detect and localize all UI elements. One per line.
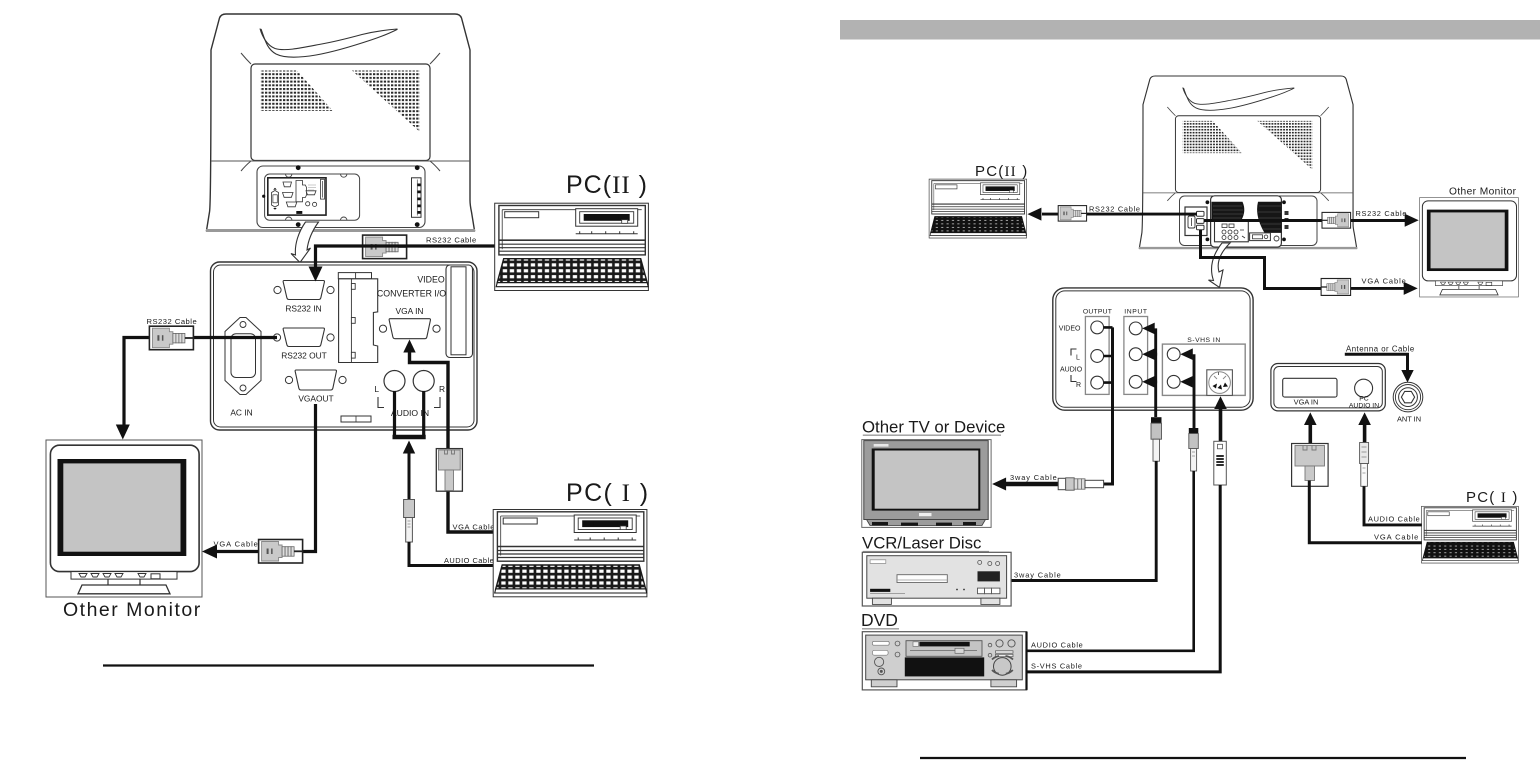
svg-text:L: L: [1076, 355, 1080, 362]
svg-text:OUTPUT: OUTPUT: [1083, 309, 1112, 316]
svg-text:VGA IN: VGA IN: [396, 306, 424, 316]
svg-text:AUDIO: AUDIO: [1060, 367, 1083, 374]
svg-text:3way Cable: 3way Cable: [1014, 571, 1062, 580]
svg-text:Other TV or Device: Other TV or Device: [862, 418, 1005, 437]
svg-text:VGA Cable: VGA Cable: [1374, 533, 1419, 542]
svg-text:Other Monitor: Other Monitor: [63, 599, 202, 621]
svg-text:3way Cable: 3way Cable: [1010, 473, 1058, 482]
svg-text:S-VHS Cable: S-VHS Cable: [1031, 662, 1083, 671]
svg-text:INPUT: INPUT: [1124, 309, 1147, 316]
svg-text:VGAOUT: VGAOUT: [298, 394, 333, 404]
svg-text:PC( I ): PC( I ): [566, 479, 649, 507]
svg-text:PC: PC: [1359, 396, 1369, 403]
svg-text:R: R: [1076, 382, 1081, 389]
svg-text:AUDIO Cable: AUDIO Cable: [1031, 641, 1083, 650]
svg-text:VCR/Laser Disc: VCR/Laser Disc: [862, 534, 981, 553]
svg-text:VIDEO: VIDEO: [1059, 326, 1081, 333]
svg-text:RS232 Cable: RS232 Cable: [426, 236, 477, 245]
svg-text:RS232 IN: RS232 IN: [285, 304, 321, 314]
svg-text:VGA Cable: VGA Cable: [453, 523, 496, 532]
svg-text:PC(II ): PC(II ): [566, 171, 648, 199]
svg-text:PC( I ): PC( I ): [1466, 489, 1519, 506]
svg-text:RS232 OUT: RS232 OUT: [281, 351, 327, 361]
svg-text:AC IN: AC IN: [230, 408, 252, 418]
svg-text:ANT IN: ANT IN: [1397, 415, 1421, 424]
svg-text:L: L: [374, 384, 379, 394]
svg-text:S-VHS IN: S-VHS IN: [1187, 337, 1220, 344]
svg-text:DVD: DVD: [861, 610, 898, 630]
svg-text:Antenna or Cable: Antenna or Cable: [1346, 345, 1415, 354]
svg-text:AUDIO Cable: AUDIO Cable: [1368, 515, 1420, 524]
svg-text:VGA Cable: VGA Cable: [214, 540, 259, 549]
svg-text:RS232 Cable: RS232 Cable: [1089, 205, 1141, 214]
svg-text:AUDIO IN: AUDIO IN: [1349, 403, 1379, 410]
svg-text:VGA IN: VGA IN: [1294, 398, 1319, 407]
svg-text:AUDIO Cable: AUDIO Cable: [444, 556, 494, 565]
svg-text:Other Monitor: Other Monitor: [1449, 187, 1517, 198]
svg-text:RS232 Cable: RS232 Cable: [147, 317, 198, 326]
svg-text:R: R: [439, 384, 445, 394]
svg-text:RS232 Cable: RS232 Cable: [1356, 209, 1408, 218]
svg-text:VIDEO: VIDEO: [417, 275, 445, 285]
svg-text:PC(II ): PC(II ): [975, 163, 1028, 180]
svg-text:CONVERTER I/O: CONVERTER I/O: [377, 289, 446, 299]
svg-text:VGA Cable: VGA Cable: [1362, 277, 1407, 286]
